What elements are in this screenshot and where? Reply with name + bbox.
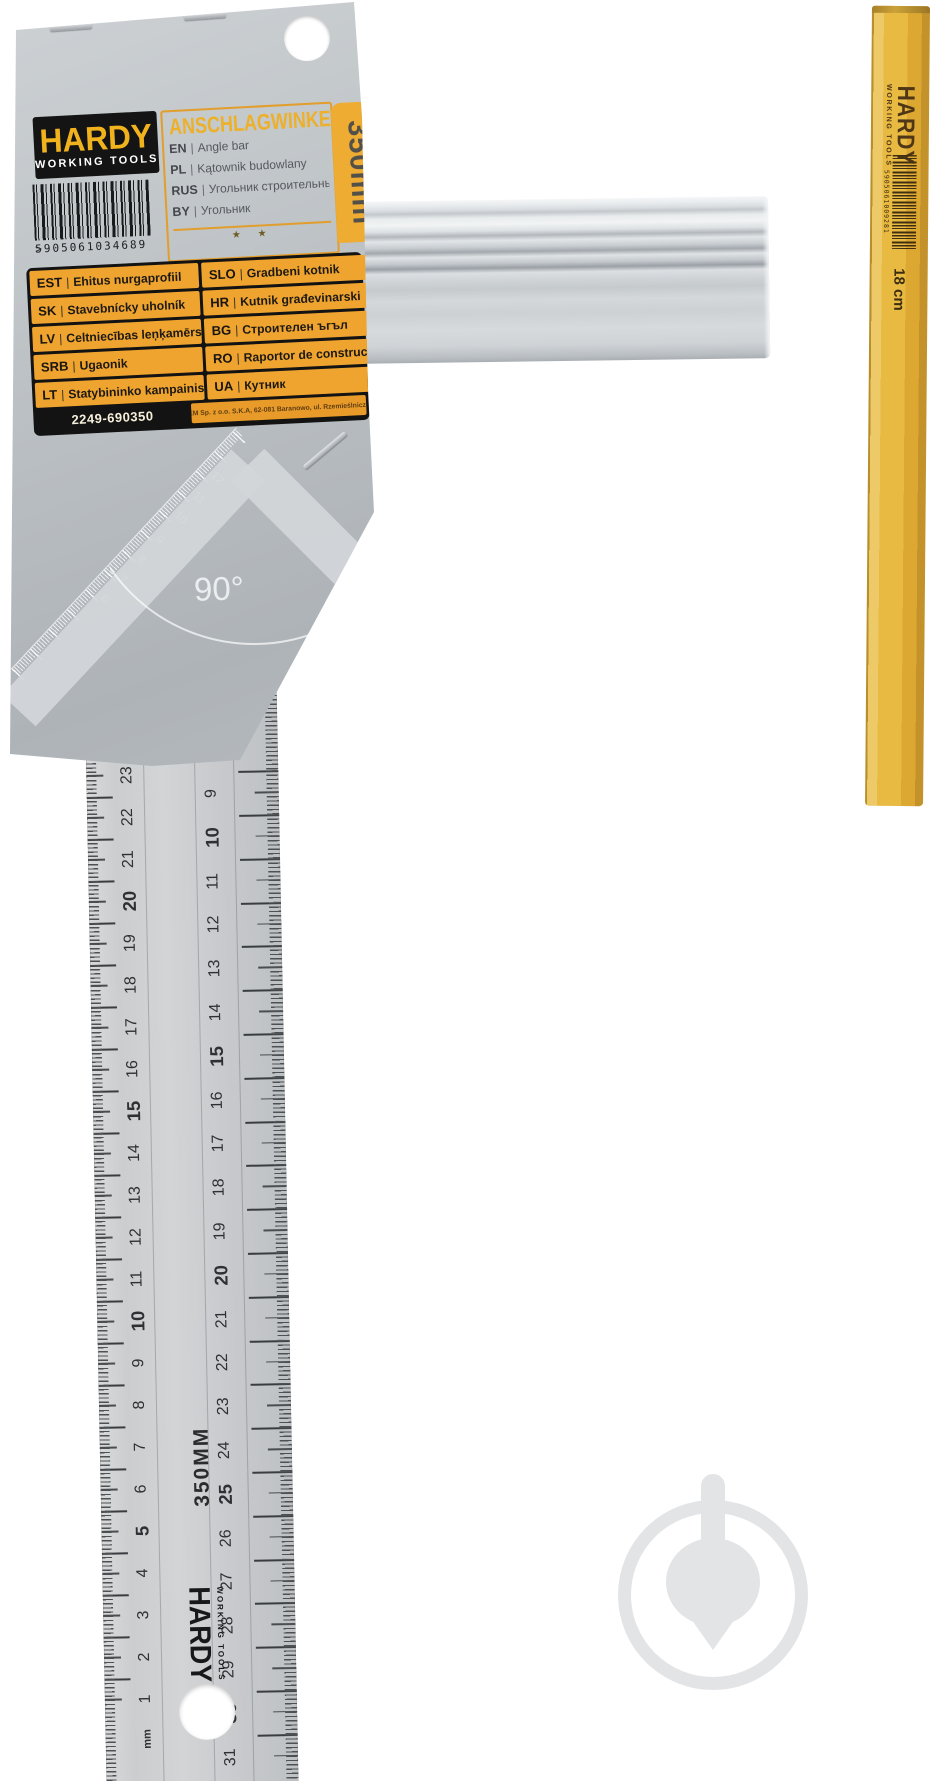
ruler-scale-number: 22 <box>114 803 143 832</box>
language-column-right: SLO | Gradbeni kotnik HR | Kutnik građev… <box>201 254 380 399</box>
mm-ticks <box>272 1077 285 1121</box>
language-label: Statybininko kampainis <box>68 380 205 401</box>
brand-name: HARDY <box>39 118 153 157</box>
staple <box>50 23 92 32</box>
ruler-scale-number: 17 <box>204 1129 233 1160</box>
mm-ticks <box>266 770 279 814</box>
mm-ticks <box>279 1427 292 1471</box>
ruler-cm-cell <box>253 1690 298 1735</box>
separator: | <box>193 204 197 218</box>
ruler-cm-cell <box>248 1471 293 1516</box>
language-column-left: EST | Ehitus nurgaprofiil SK | Stavebníc… <box>29 263 205 408</box>
mm-ticks <box>94 1175 105 1217</box>
ruler-unit-label: mm <box>135 1725 160 1753</box>
mm-ticks <box>269 902 282 946</box>
language-code: LV <box>39 331 55 347</box>
mm-ticks <box>96 1259 107 1301</box>
language-code: RO <box>213 350 233 366</box>
ruler-scale-number: 13 <box>201 953 230 984</box>
ruler-scale-number: 16 <box>119 1055 148 1084</box>
mm-ticks <box>270 945 283 989</box>
mm-ticks <box>271 989 284 1033</box>
mm-ticks <box>103 1595 114 1637</box>
ruler-cm-cell <box>244 1252 289 1297</box>
ruler-scale-number: 18 <box>117 971 146 1000</box>
language-code: EN <box>169 141 187 156</box>
mm-ticks <box>99 1385 110 1427</box>
language-label: Gradbeni kotnik <box>246 262 339 281</box>
mm-ticks <box>100 1469 111 1511</box>
ruler-scale-number: 2 <box>131 1643 160 1672</box>
item-code: 2249-690350 <box>36 404 189 431</box>
ruler-cm-cell <box>247 1427 292 1472</box>
language-code: RUS <box>171 183 198 198</box>
manufacturer-info: KAEM Sp. z o.o. S.K.A, 62-081 Baranowo, … <box>191 395 367 424</box>
translation-label: Угольник <box>201 201 251 218</box>
mm-ticks <box>101 1511 112 1553</box>
ruler-scale-number: 18 <box>205 1172 234 1203</box>
language-code: BY <box>172 204 190 219</box>
translation-list: EN | Angle bar PL | Kątownik budowlany R… <box>169 134 331 226</box>
ruler-cm-cell <box>249 1515 294 1560</box>
mm-ticks <box>91 1007 102 1049</box>
pencil-length: 18 cm <box>869 256 928 323</box>
mm-ticks <box>268 858 281 902</box>
steel-ruler-blade: 2322212019181716151413121110987654321 <box>84 656 300 1781</box>
ruler-scale-number: 13 <box>121 1181 150 1210</box>
separator: | <box>233 295 237 309</box>
ruler-scale-number: 9 <box>197 778 226 809</box>
ruler-scale-number: 17 <box>118 1013 147 1042</box>
mm-ticks <box>285 1690 298 1734</box>
mm-ticks <box>282 1558 295 1602</box>
ruler-scale-number: 14 <box>202 997 231 1028</box>
mm-ticks <box>273 1121 286 1165</box>
language-code: SRB <box>41 358 69 374</box>
ruler-hanging-hole <box>179 1683 236 1740</box>
separator: | <box>72 359 76 373</box>
ruler-brand-inner: WORKING TOOLS HARDY <box>185 1585 226 1682</box>
pencil-length-label: 18 cm <box>890 268 907 311</box>
mm-ticks <box>275 1208 288 1252</box>
brand-logo: HARDY WORKING TOOLS <box>32 111 159 179</box>
ruler-cm-cell <box>238 945 283 990</box>
product-photo: 2322212019181716151413121110987654321 <box>0 0 942 1781</box>
pencil-barcode: 5905061009281 <box>870 152 929 253</box>
ruler-scale-number: 15 <box>203 1041 232 1072</box>
separator: | <box>236 350 240 364</box>
ruler-cm-cell <box>242 1164 287 1209</box>
ruler-brand-name: HARDY <box>184 1586 216 1683</box>
mm-ticks <box>281 1515 294 1559</box>
mm-ticks <box>88 839 99 881</box>
mm-ticks <box>92 1049 103 1091</box>
staple <box>184 12 226 21</box>
mm-ticks <box>93 1133 104 1175</box>
ruler-scale-number: 9 <box>125 1349 154 1378</box>
barcode-bars <box>892 155 917 249</box>
separator: | <box>201 182 205 196</box>
language-label: Raportor de construcții <box>243 344 378 365</box>
ruler-left-tick-filler <box>105 1720 138 1781</box>
ruler-scale-number: 12 <box>122 1223 151 1252</box>
mm-ticks <box>286 1734 299 1778</box>
language-label: Ugaonik <box>79 356 128 372</box>
mm-ticks <box>283 1602 296 1646</box>
ruler-cm-cell <box>254 1734 299 1779</box>
ruler-scale-number: 20 <box>116 887 145 916</box>
ruler-cm-cell <box>235 814 280 859</box>
ruler-cm-cell <box>247 1383 292 1428</box>
mm-ticks <box>274 1164 287 1208</box>
mm-ticks <box>280 1471 293 1515</box>
language-label: Kutnik građevinarski <box>240 289 361 309</box>
ruler-cm-cell <box>239 989 284 1034</box>
barcode-digits: 5905061009281 <box>882 170 891 234</box>
ruler-scale-number: 6 <box>127 1475 156 1504</box>
ruler-scale-number: 19 <box>206 1216 235 1247</box>
ruler-cm-cell <box>251 1602 296 1647</box>
mm-ticks <box>276 1252 289 1296</box>
separator: | <box>59 331 63 345</box>
angle-arc <box>110 556 402 645</box>
barcode-suffix: > <box>35 242 44 255</box>
separator: | <box>61 387 65 401</box>
mm-ticks <box>89 923 100 965</box>
separator: | <box>239 266 243 280</box>
ruler-scale-number: 19 <box>116 929 145 958</box>
ruler-cm-cell <box>245 1296 290 1341</box>
ruler-scale-number: 10 <box>198 822 227 853</box>
ruler-cm-cell <box>234 770 279 815</box>
language-code: SK <box>38 303 57 319</box>
mm-ticks <box>87 797 98 839</box>
mm-ticks <box>102 1553 113 1595</box>
separator: | <box>190 141 194 155</box>
ruler-scale-number: 21 <box>208 1304 237 1335</box>
mm-ticks <box>279 1383 292 1427</box>
separator: | <box>66 275 70 289</box>
ruler-scale-number: 15 <box>120 1097 149 1126</box>
ruler-scale-number: 4 <box>129 1559 158 1588</box>
mm-ticks <box>272 1033 285 1077</box>
mm-ticks <box>93 1091 104 1133</box>
mm-ticks <box>88 881 99 923</box>
separator: | <box>235 323 239 337</box>
mm-ticks <box>278 1340 291 1384</box>
store-watermark <box>618 1474 808 1690</box>
ruler-cm-cell <box>246 1340 291 1385</box>
ruler-cm-cell <box>252 1646 297 1691</box>
ruler-cm-cell <box>250 1558 295 1603</box>
language-label: Stavebnícky uholník <box>67 297 185 317</box>
mm-ticks <box>95 1217 106 1259</box>
ruler-scale-number: 23 <box>113 761 142 790</box>
ruler-scale-number: 22 <box>209 1347 238 1378</box>
staple <box>303 431 348 470</box>
ruler-scale-number: 21 <box>115 845 144 874</box>
separator: | <box>190 162 194 176</box>
mm-ticks <box>277 1296 290 1340</box>
ruler-cm-cell <box>240 1033 285 1078</box>
mm-ticks <box>98 1343 109 1385</box>
mm-ticks <box>104 1679 115 1721</box>
language-columns: EST | Ehitus nurgaprofiil SK | Stavebníc… <box>29 255 365 408</box>
hang-hole <box>284 15 330 61</box>
card-barcode: 5905061034689> <box>32 179 155 260</box>
ruler-scale-number: 31 <box>217 1742 246 1773</box>
ruler-cm-cell <box>243 1208 288 1253</box>
ruler-cm-cell <box>241 1121 286 1166</box>
mm-ticks <box>267 814 280 858</box>
pencil-barcode-inner: 5905061009281 <box>882 155 917 249</box>
barcode-bars <box>32 180 150 241</box>
language-code: BG <box>211 322 231 338</box>
separator: | <box>237 378 241 392</box>
ruler-scale-number: 5 <box>128 1517 157 1546</box>
ruler-cm-cell <box>237 902 282 947</box>
ruler-scale-number: 12 <box>200 910 229 941</box>
ruler-scale-number: 7 <box>127 1433 156 1462</box>
separator: | <box>60 303 64 317</box>
language-label: Celtniecības leņķamērs <box>66 324 202 345</box>
ruler-length-label: 350MM <box>172 1375 232 1558</box>
ruler-scale-number: 8 <box>126 1391 155 1420</box>
language-code: PL <box>170 162 187 177</box>
language-label: Кутник <box>244 376 286 392</box>
language-table: EST | Ehitus nurgaprofiil SK | Stavebníc… <box>26 252 370 436</box>
ruler-cm-cell <box>240 1077 285 1122</box>
language-label: Ehitus nurgaprofiil <box>73 269 182 288</box>
language-code: EST <box>36 275 62 291</box>
ruler-scale-number: 16 <box>204 1085 233 1116</box>
language-code: HR <box>210 294 229 310</box>
ruler-scale-number: 20 <box>207 1260 236 1291</box>
mm-ticks <box>104 1637 115 1679</box>
mm-ticks <box>99 1427 110 1469</box>
mm-ticks <box>284 1646 297 1690</box>
language-code: SLO <box>209 266 236 282</box>
translation-label: Angle bar <box>197 138 249 155</box>
ruler-scale-number: 11 <box>123 1265 152 1294</box>
angle-arc-clip <box>110 556 402 650</box>
aluminium-stock-bar <box>348 196 770 364</box>
language-code: UA <box>214 378 233 394</box>
ruler-scale-number: 11 <box>199 866 228 897</box>
ruler-scale-number: 14 <box>121 1139 150 1168</box>
mm-ticks <box>90 965 101 1007</box>
ruler-scale-number: 10 <box>124 1307 153 1336</box>
language-code: LT <box>42 387 58 403</box>
title-panel: ANSCHLAGWINKEL EN | Angle bar PL | Kątow… <box>160 102 340 263</box>
ruler-scale-number: 1 <box>132 1685 161 1714</box>
barcode-number: 5905061034689 <box>35 238 148 256</box>
packaging-card: HARDY WORKING TOOLS 5905061034689> ANSCH… <box>4 0 396 784</box>
ruler-scale-number: 3 <box>130 1601 159 1630</box>
carpenter-pencil: HARDY WORKING TOOLS 5905061009281 18 cm <box>865 6 930 806</box>
mm-ticks <box>97 1301 108 1343</box>
ruler-cm-cell <box>236 858 281 903</box>
ruler-length-text: 350MM <box>189 1427 215 1507</box>
language-label: Строителен ъгъл <box>242 317 348 336</box>
